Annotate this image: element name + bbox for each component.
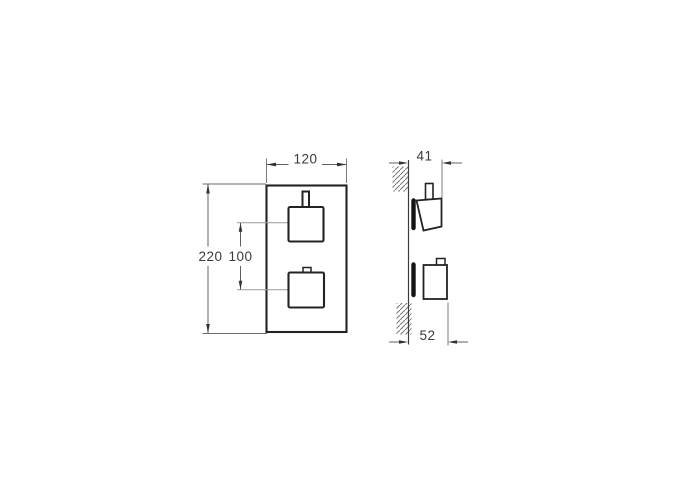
upper-handle-front: [289, 207, 324, 242]
drawing-svg: 120 220 100: [0, 0, 700, 494]
dim-spacing-arrow-top: [239, 223, 243, 232]
dim-label-plate-height: 220: [198, 249, 222, 264]
dim-spacing-arrow-bottom: [239, 281, 243, 290]
dim-plate-width: 120: [267, 152, 347, 184]
upper-handle-stem-profile: [426, 184, 434, 200]
dim-label-upper-projection: 41: [416, 149, 432, 164]
dim-52-arrow-left: [399, 340, 408, 344]
dim-52-arrow-right: [448, 340, 457, 344]
dim-label-plate-width: 120: [293, 152, 317, 167]
lower-handle-front: [289, 273, 325, 308]
dim-label-lower-projection: 52: [419, 328, 435, 343]
wall-hatch-bottom: [397, 303, 412, 335]
dim-41-arrow-left: [399, 161, 408, 165]
dim-height-arrow-top: [206, 184, 210, 194]
dim-handle-spacing: 100: [228, 223, 252, 290]
dim-label-handle-spacing: 100: [228, 249, 252, 264]
lower-handle-profile: [424, 265, 448, 299]
dim-width-arrow-right: [337, 163, 347, 167]
side-view: 41 52: [389, 149, 468, 346]
upper-handle-stem: [303, 192, 310, 208]
front-view: 120 220 100: [198, 152, 346, 334]
technical-drawing: 120 220 100: [0, 0, 700, 494]
dim-width-arrow-left: [267, 163, 277, 167]
dim-41-arrow-right: [442, 161, 451, 165]
dim-height-arrow-bottom: [206, 324, 210, 334]
upper-handle-profile: [417, 199, 442, 231]
wall-hatch-top: [393, 167, 409, 192]
